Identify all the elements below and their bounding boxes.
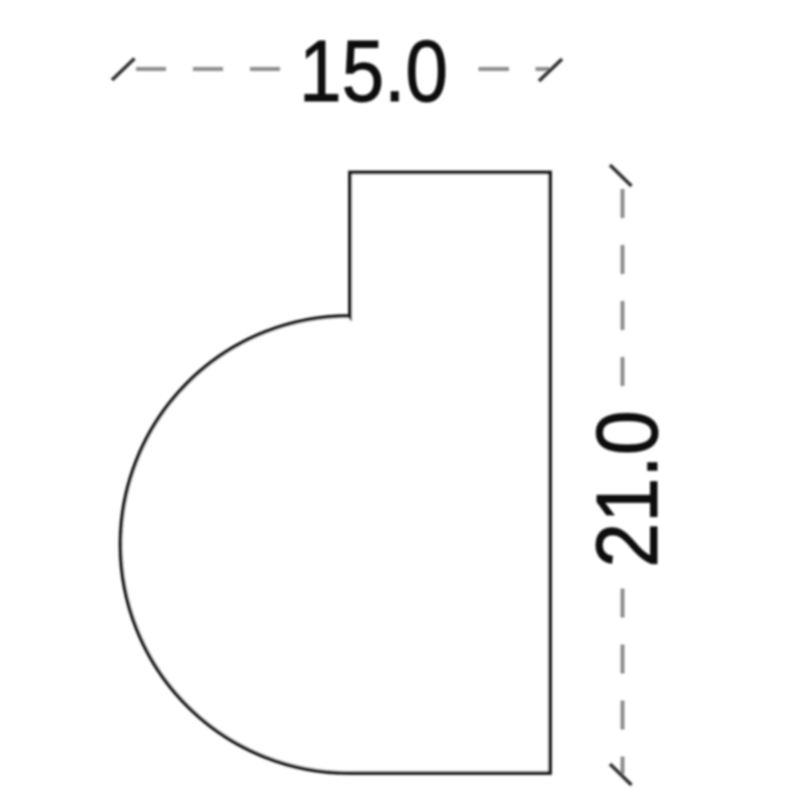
svg-text:21.0: 21.0 (578, 410, 675, 567)
svg-text:15.0: 15.0 (299, 23, 448, 120)
